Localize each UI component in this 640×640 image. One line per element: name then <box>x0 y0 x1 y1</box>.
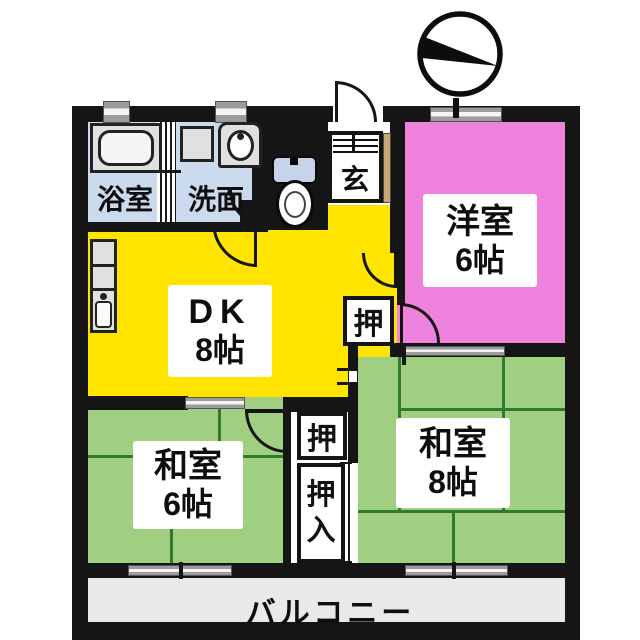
kitchen-divider <box>92 264 115 267</box>
oshiire-closet: 押 入 <box>297 463 345 563</box>
wall-right <box>565 106 580 638</box>
entrance-step-line <box>333 139 378 141</box>
bathtub-inner <box>98 130 154 166</box>
entrance-step-tick <box>352 131 355 153</box>
japanese8-label-box: 和室 8帖 <box>396 418 510 508</box>
western-room-name: 洋室 <box>446 202 514 242</box>
japanese8-size: 8帖 <box>428 464 478 502</box>
oshiire-label-bottom: 入 <box>306 513 335 549</box>
entrance-step-line <box>333 151 378 153</box>
wash-window <box>215 101 247 123</box>
wall-tick <box>402 343 406 365</box>
toilet-tank-button <box>290 156 298 165</box>
wall-entry-east <box>390 122 405 253</box>
entrance-door-arc <box>335 81 377 122</box>
wall-opening-tick <box>337 382 351 385</box>
entrance-accent-strip <box>383 133 391 203</box>
entrance-step-line <box>333 145 378 147</box>
western-room-label-box: 洋室 6帖 <box>423 194 537 287</box>
western-room-size: 6帖 <box>455 242 505 280</box>
closet-west: 押 <box>343 296 394 346</box>
japanese6-label-box: 和室 6帖 <box>133 441 243 529</box>
wall-opening-gap <box>349 371 357 382</box>
sliding-door-dk-japanese6 <box>185 397 245 409</box>
balcony-label: バルコニー <box>88 588 573 632</box>
kitchen-faucet <box>100 293 107 300</box>
balcony-door-tick <box>452 562 456 579</box>
dk-floor-under-entry <box>328 205 390 230</box>
tatami-line <box>452 513 455 563</box>
dk-size: 8帖 <box>195 332 245 370</box>
closet-center: 押 <box>297 412 347 460</box>
closet-west-label: 押 <box>354 299 384 343</box>
washbasin-faucet <box>237 133 244 140</box>
dk-name: DK <box>188 292 251 332</box>
north-compass-icon <box>413 8 513 122</box>
bath-label: 浴室 <box>90 178 160 218</box>
wall-japanese6-north <box>88 396 188 410</box>
balcony-door-japanese8 <box>405 565 508 576</box>
wall-western-west <box>397 253 405 305</box>
closet-center-label: 押 <box>307 414 337 458</box>
oshiire-label-top: 押 <box>306 477 335 513</box>
tatami-line <box>398 408 565 411</box>
entrance-label: 玄 <box>330 158 380 198</box>
floor-plan: 浴室 洗面 玄 DK 8帖 洋室 6帖 和室 6帖 和室 8帖 押 押 押 入 … <box>0 0 640 640</box>
japanese6-name: 和室 <box>154 446 222 486</box>
japanese8-name: 和室 <box>419 424 487 464</box>
washing-machine-icon <box>180 126 214 162</box>
balcony-door-tick <box>179 562 183 579</box>
wall-column-east <box>348 343 358 463</box>
dk-label-box: DK 8帖 <box>168 285 272 377</box>
kitchen-sink <box>95 301 112 328</box>
washroom-label: 洗面 <box>177 178 255 218</box>
japanese6-size: 6帖 <box>163 486 213 524</box>
sliding-door-western-japanese8 <box>405 346 505 356</box>
kitchen-divider <box>92 288 115 291</box>
toilet-bowl-inner <box>284 191 306 218</box>
tatami-line <box>358 510 565 513</box>
wall-column-north <box>283 397 358 412</box>
bath-window <box>103 101 130 123</box>
wall-left <box>72 106 88 638</box>
